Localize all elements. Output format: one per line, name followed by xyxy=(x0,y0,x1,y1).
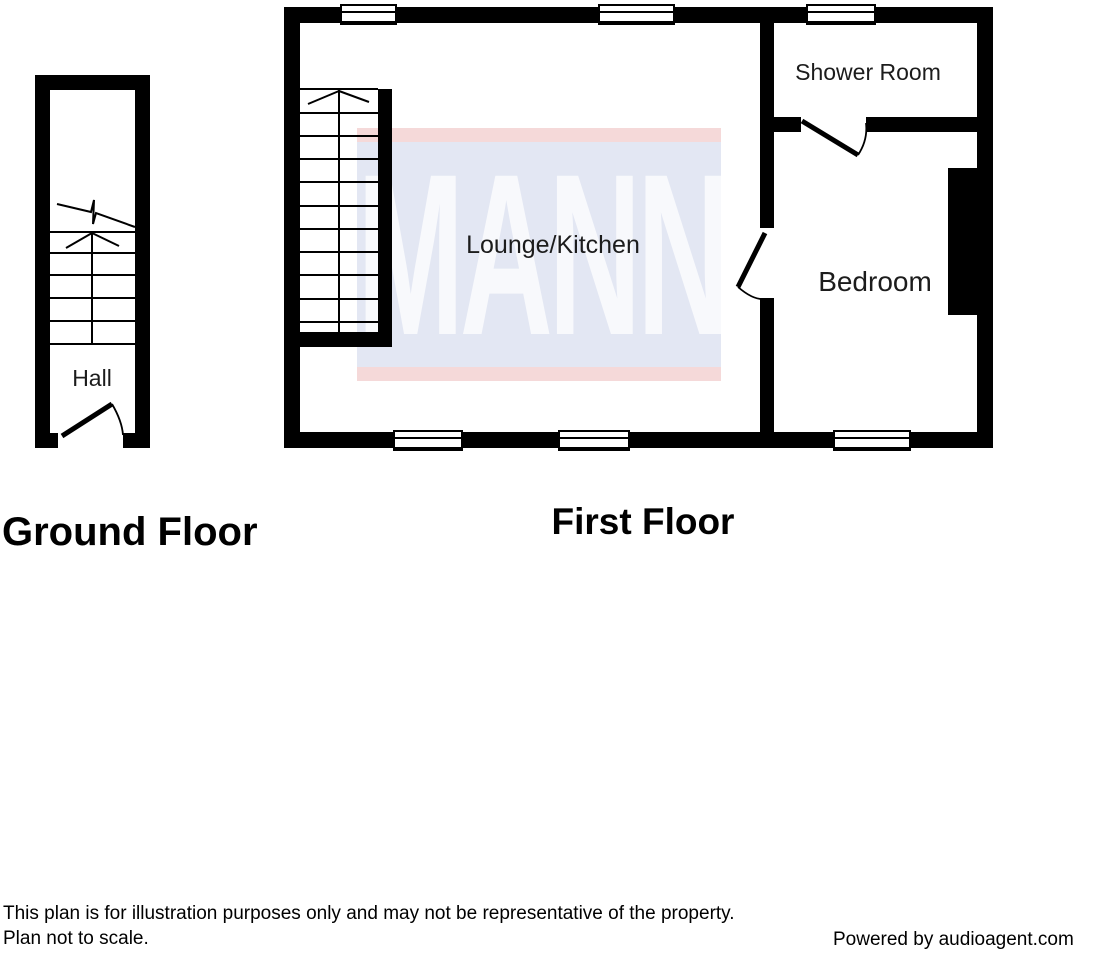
stairs-bottom-wall xyxy=(300,332,392,347)
window-top-left xyxy=(340,4,397,25)
window-top-middle xyxy=(598,4,675,25)
disclaimer-line1: This plan is for illustration purposes o… xyxy=(3,903,735,925)
floorplan-canvas: MANN Ha xyxy=(0,0,1096,960)
ground-floor-title: Ground Floor xyxy=(2,510,258,555)
window-bottom-left xyxy=(393,430,463,451)
ground-floor-entrance-opening xyxy=(58,433,123,448)
bedroom-label: Bedroom xyxy=(775,266,975,298)
window-bottom-middle xyxy=(558,430,630,451)
shower-room-label: Shower Room xyxy=(768,59,968,86)
first-floor-title: First Floor xyxy=(543,501,743,543)
ground-floor-outline xyxy=(35,75,150,448)
disclaimer-line2: Plan not to scale. xyxy=(3,928,149,950)
shower-wall-left xyxy=(760,117,801,132)
hall-label: Hall xyxy=(42,365,142,392)
lounge-kitchen-label: Lounge/Kitchen xyxy=(453,231,653,260)
stairs-right-wall xyxy=(378,89,392,347)
shower-wall-right xyxy=(866,117,977,132)
window-top-right xyxy=(806,4,876,25)
powered-by-credit: Powered by audioagent.com xyxy=(833,929,1074,951)
divider-wall-lower xyxy=(760,298,774,432)
window-bottom-right xyxy=(833,430,911,451)
